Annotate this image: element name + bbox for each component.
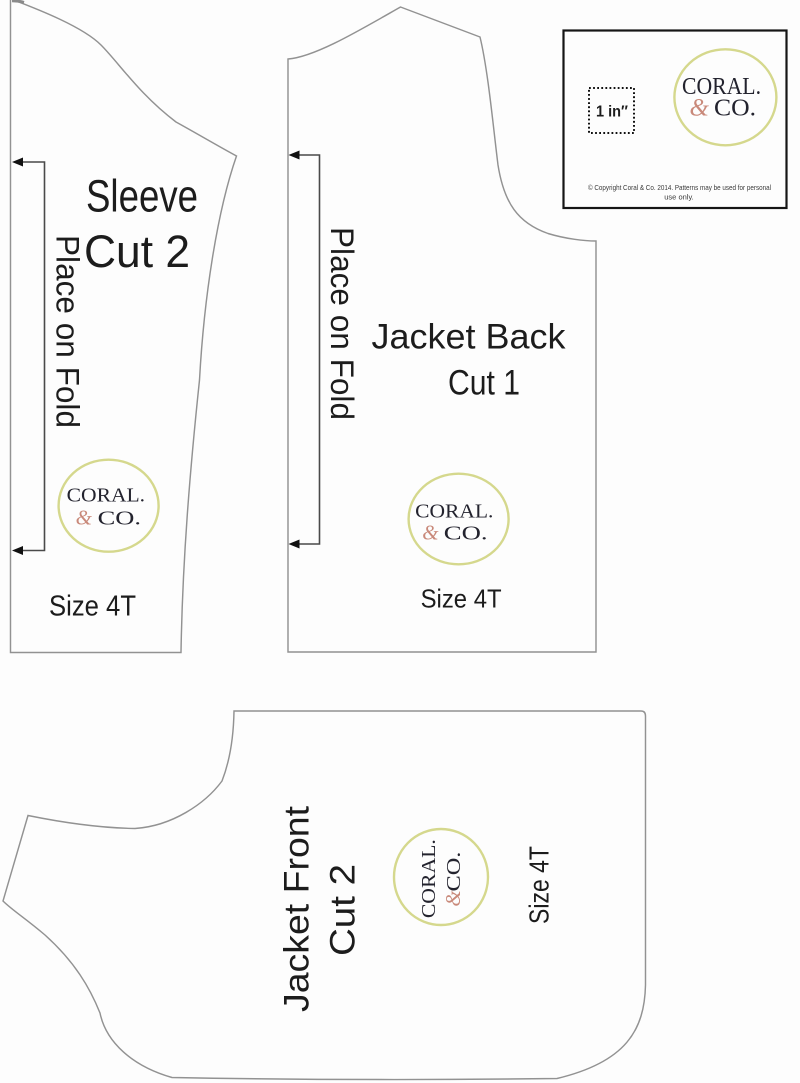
svg-text:© Copyright Coral & Co. 2014.: © Copyright Coral & Co. 2014. Patterns m… xyxy=(588,183,771,192)
svg-text:Size 4T: Size 4T xyxy=(49,591,136,623)
svg-text:&: & xyxy=(690,95,710,122)
svg-text:Sleeve: Sleeve xyxy=(86,171,198,222)
svg-text:Cut 1: Cut 1 xyxy=(448,364,520,403)
svg-text:&: & xyxy=(422,521,439,545)
svg-text:Size 4T: Size 4T xyxy=(524,846,555,924)
svg-text:CORAL.: CORAL. xyxy=(67,485,145,507)
svg-text:Place on Fold: Place on Fold xyxy=(50,235,86,428)
svg-text:CO.: CO. xyxy=(714,96,756,122)
svg-text:Place on Fold: Place on Fold xyxy=(324,227,360,420)
svg-text:use only.: use only. xyxy=(664,193,693,202)
svg-text:Size 4T: Size 4T xyxy=(421,584,502,614)
svg-text:Cut 2: Cut 2 xyxy=(84,226,190,277)
svg-text:CO.: CO. xyxy=(443,852,465,892)
svg-text:1 in″: 1 in″ xyxy=(596,104,628,121)
svg-text:&: & xyxy=(76,505,93,529)
svg-text:CORAL.: CORAL. xyxy=(415,501,493,523)
svg-text:CORAL.: CORAL. xyxy=(418,839,440,918)
svg-text:Jacket Front: Jacket Front xyxy=(278,806,317,1012)
svg-text:Cut 2: Cut 2 xyxy=(324,864,363,956)
svg-text:CO.: CO. xyxy=(444,523,488,545)
svg-text:CO.: CO. xyxy=(98,507,141,529)
svg-text:Jacket Back: Jacket Back xyxy=(372,318,566,357)
